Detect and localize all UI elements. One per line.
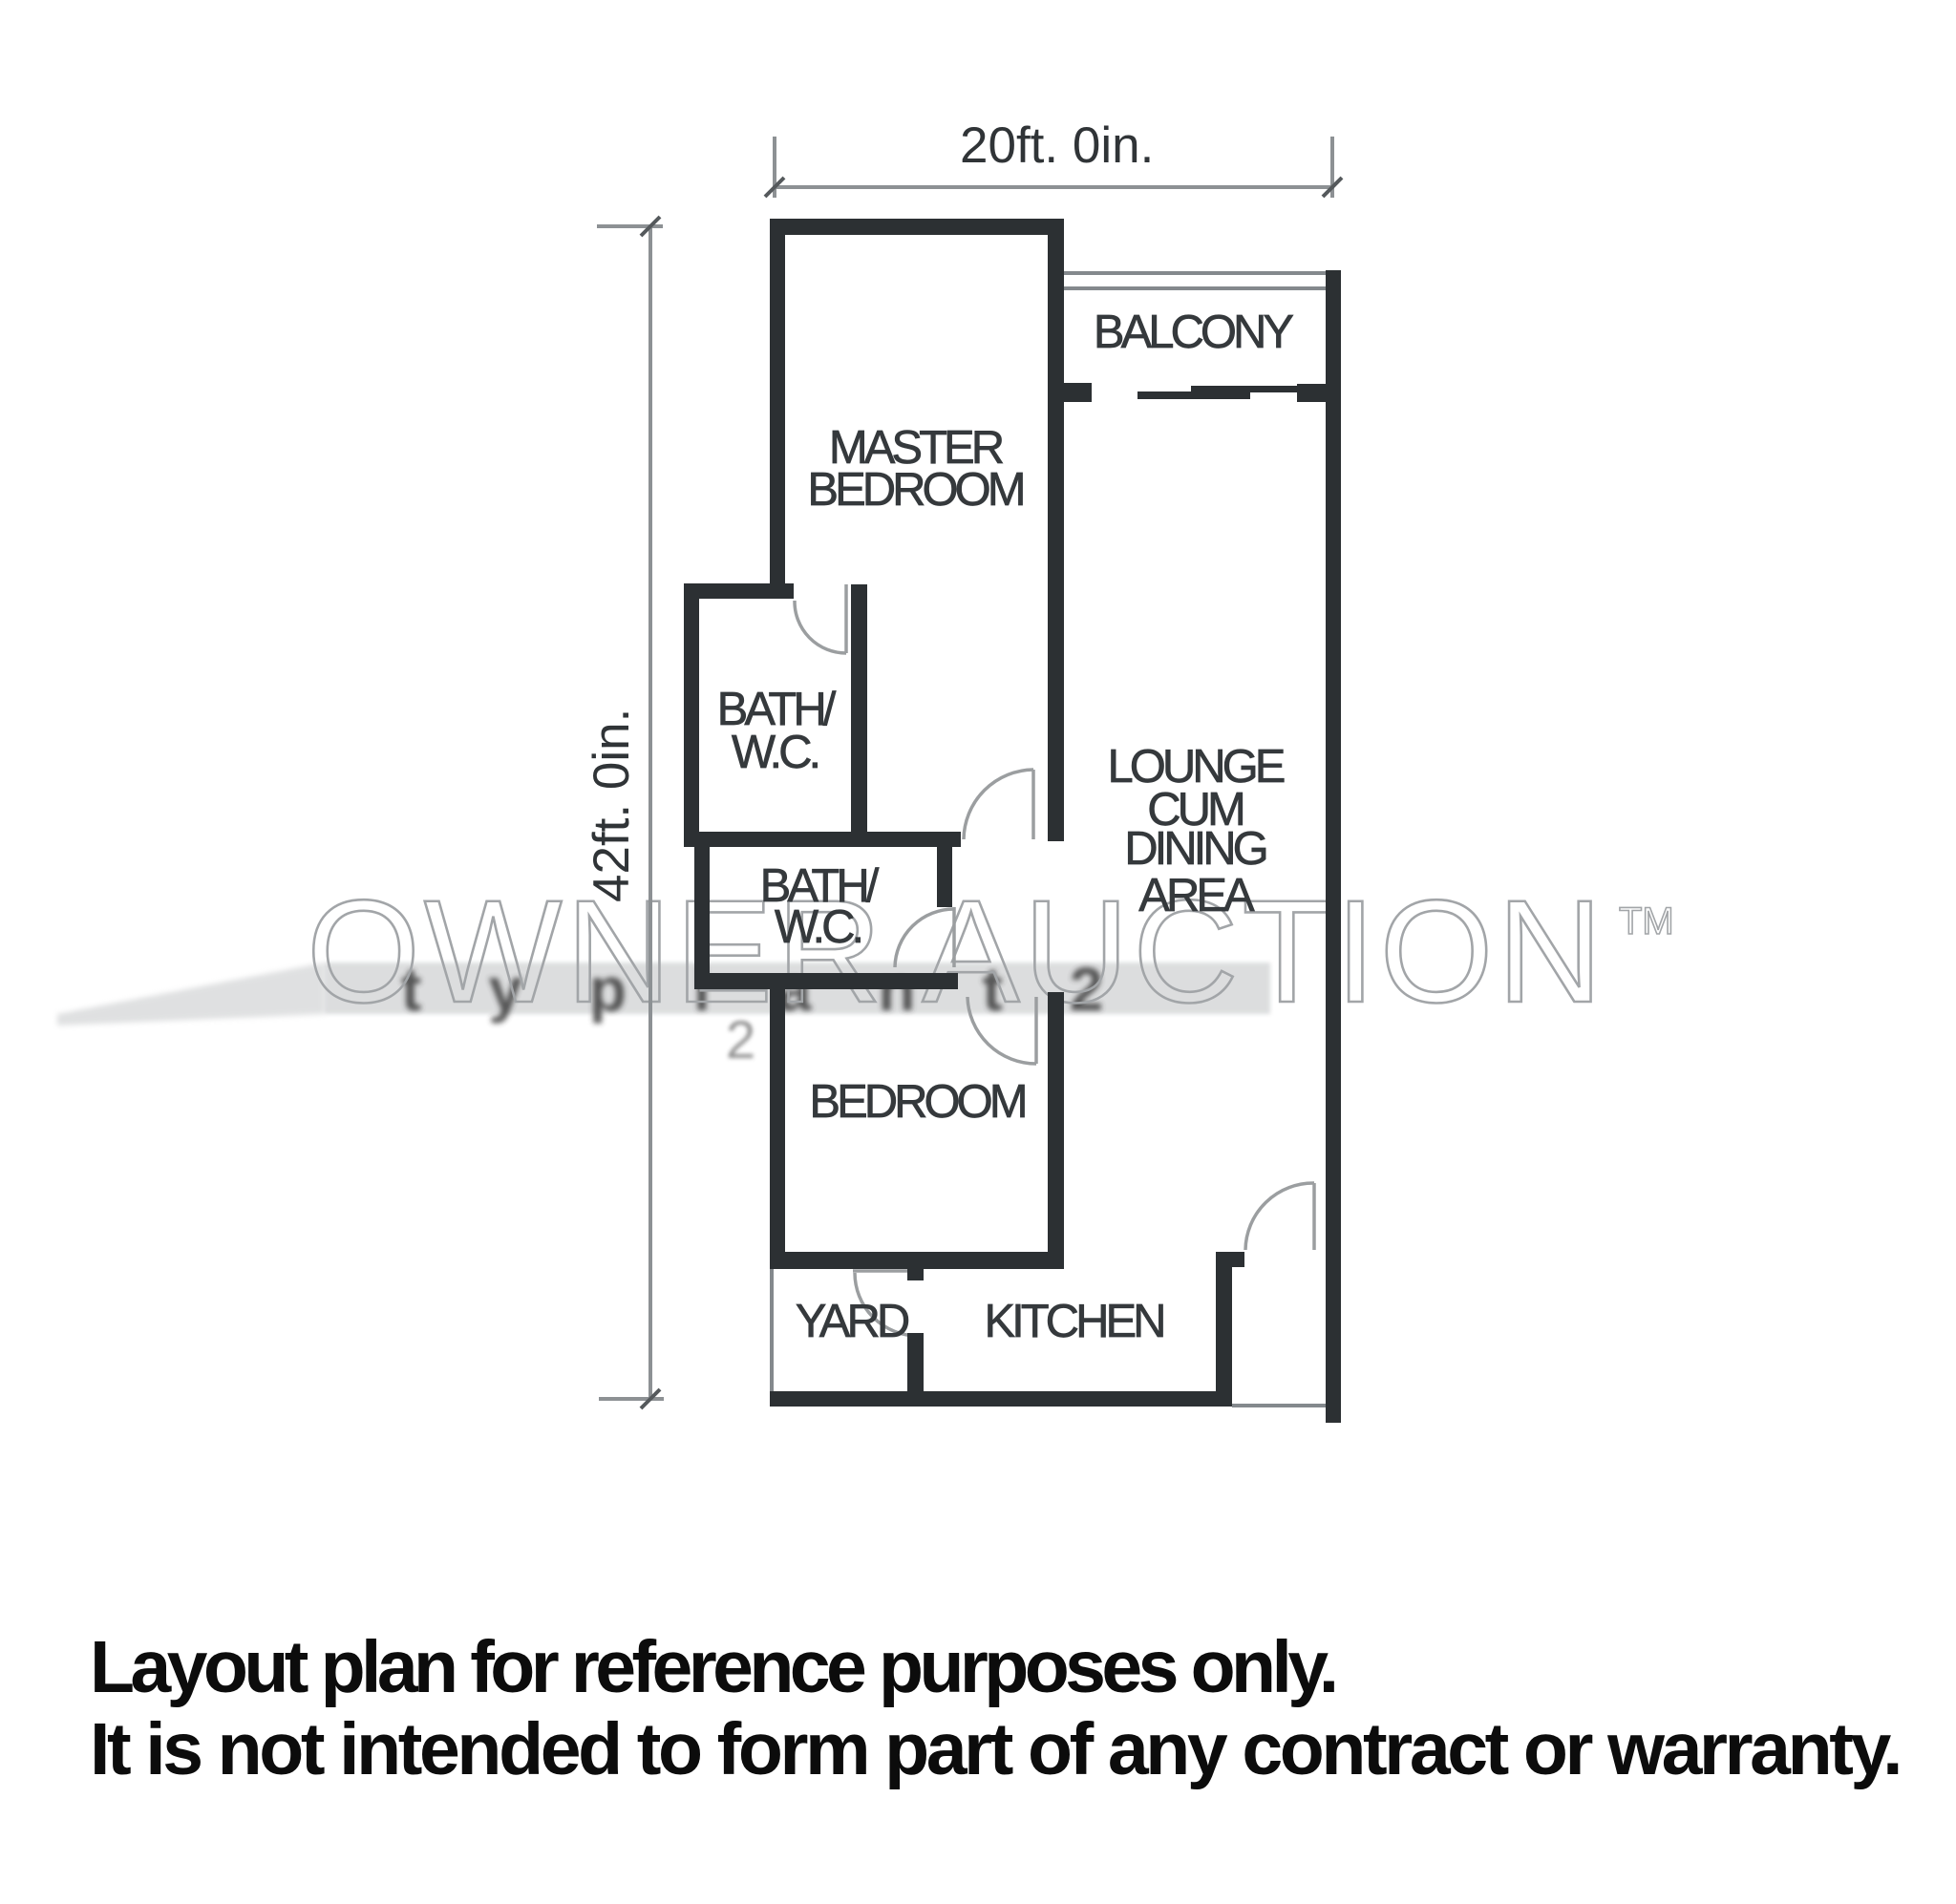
svg-text:BEDROOM: BEDROOM [809,1076,1024,1128]
svg-text:OWNER AUCTION: OWNER AUCTION [307,870,1606,1033]
svg-text:TM: TM [1619,900,1674,942]
svg-text:W.C.: W.C. [732,727,819,778]
svg-text:Layout plan for reference purp: Layout plan for reference purposes only. [90,1626,1335,1708]
svg-text:42ft. 0in.: 42ft. 0in. [584,709,640,902]
svg-text:W.C.: W.C. [775,901,861,953]
svg-text:BALCONY: BALCONY [1094,307,1294,358]
svg-text:KITCHEN: KITCHEN [984,1296,1163,1347]
svg-text:BEDROOM: BEDROOM [807,464,1022,516]
svg-text:20ft. 0in.: 20ft. 0in. [960,117,1154,174]
svg-text:AREA: AREA [1138,870,1255,921]
svg-text:DINING: DINING [1124,823,1265,875]
svg-text:It is not intended to form par: It is not intended to form part of any c… [90,1708,1900,1790]
svg-text:YARD: YARD [796,1296,909,1347]
